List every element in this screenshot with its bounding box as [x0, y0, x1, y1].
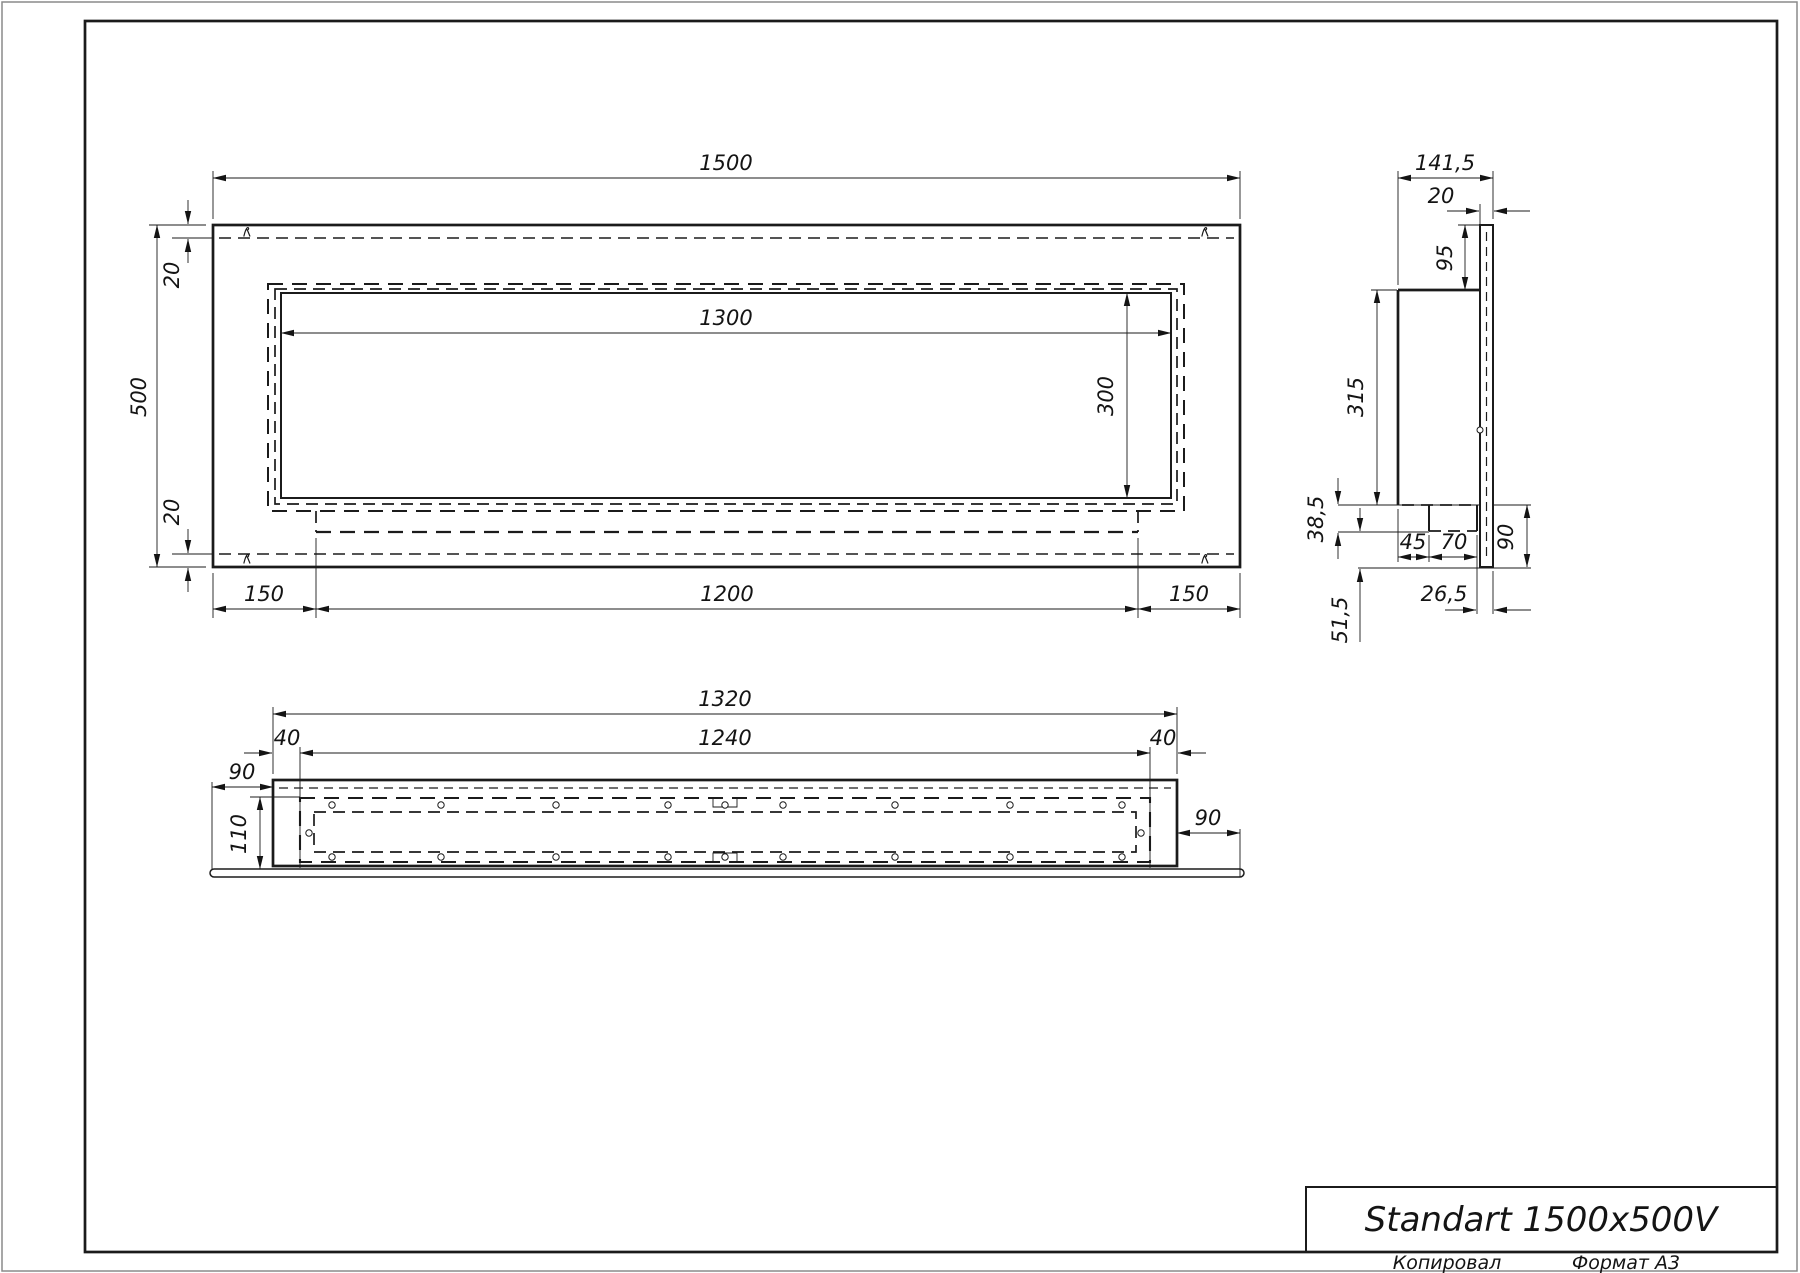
dim-side-body-height: 315: [1344, 377, 1368, 417]
dim-plan-left-gap: 40: [274, 726, 301, 750]
dim-plan-body-width: 1320: [698, 687, 751, 711]
dim-front-opening-height: 300: [1094, 376, 1118, 416]
dim-plan-left-flange: 90: [229, 760, 256, 784]
dim-front-bottom-margin: 20: [160, 499, 184, 526]
dim-plan-insert-width: 1240: [698, 726, 751, 750]
drawing-sheet: 1500 500 20 20 1300 300 150 1200 150: [0, 0, 1800, 1273]
side-view: 141,5 20 95 315 38,5 51,5 45 70 90: [1304, 151, 1531, 643]
dim-front-right-offset: 150: [1169, 582, 1209, 606]
dim-side-tray-height: 38,5: [1304, 496, 1328, 543]
drawing-frame: [2, 2, 1797, 1271]
dim-front-opening-width: 1300: [699, 306, 752, 330]
dim-front-overall-width: 1500: [699, 151, 752, 175]
dim-side-tray-setback: 45: [1400, 530, 1427, 554]
drawing-title: Standart 1500x500V: [1365, 1200, 1720, 1240]
dim-plan-inner-depth: 110: [227, 814, 251, 854]
dim-side-bottom-setback: 51,5: [1328, 597, 1352, 644]
dim-side-overall-depth: 141,5: [1415, 151, 1475, 175]
title-block: Standart 1500x500V Копировал Формат А3: [1306, 1187, 1777, 1273]
dim-side-panel-thickness: 20: [1428, 184, 1455, 208]
dim-side-tray-depth: 70: [1441, 530, 1468, 554]
plan-view: 1320 1240 40 40 90 110 90: [210, 687, 1244, 877]
dim-side-top-offset: 95: [1433, 245, 1457, 272]
dim-front-top-margin: 20: [160, 262, 184, 289]
dim-plan-right-flange: 90: [1195, 806, 1222, 830]
dim-front-burner-length: 1200: [700, 582, 753, 606]
dim-front-overall-height: 500: [127, 377, 151, 417]
dim-side-back-gap: 26,5: [1421, 582, 1468, 606]
format-label: Формат А3: [1572, 1252, 1680, 1273]
front-view: 1500 500 20 20 1300 300 150 1200 150: [127, 151, 1240, 618]
dim-side-bottom-height: 90: [1494, 524, 1518, 551]
clip-icon: [244, 228, 1208, 564]
drawing-canvas: 1500 500 20 20 1300 300 150 1200 150: [0, 0, 1800, 1273]
dim-plan-right-gap: 40: [1150, 726, 1177, 750]
copied-label: Копировал: [1393, 1252, 1502, 1273]
dim-front-left-offset: 150: [244, 582, 284, 606]
